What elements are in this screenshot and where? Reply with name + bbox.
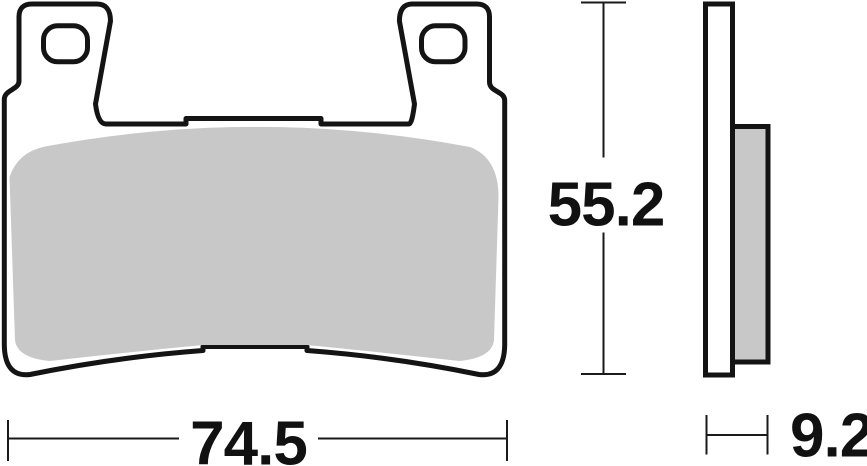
svg-text:74.5: 74.5 xyxy=(190,410,307,466)
svg-text:9.2: 9.2 xyxy=(790,402,867,466)
svg-text:55.2: 55.2 xyxy=(548,171,665,240)
